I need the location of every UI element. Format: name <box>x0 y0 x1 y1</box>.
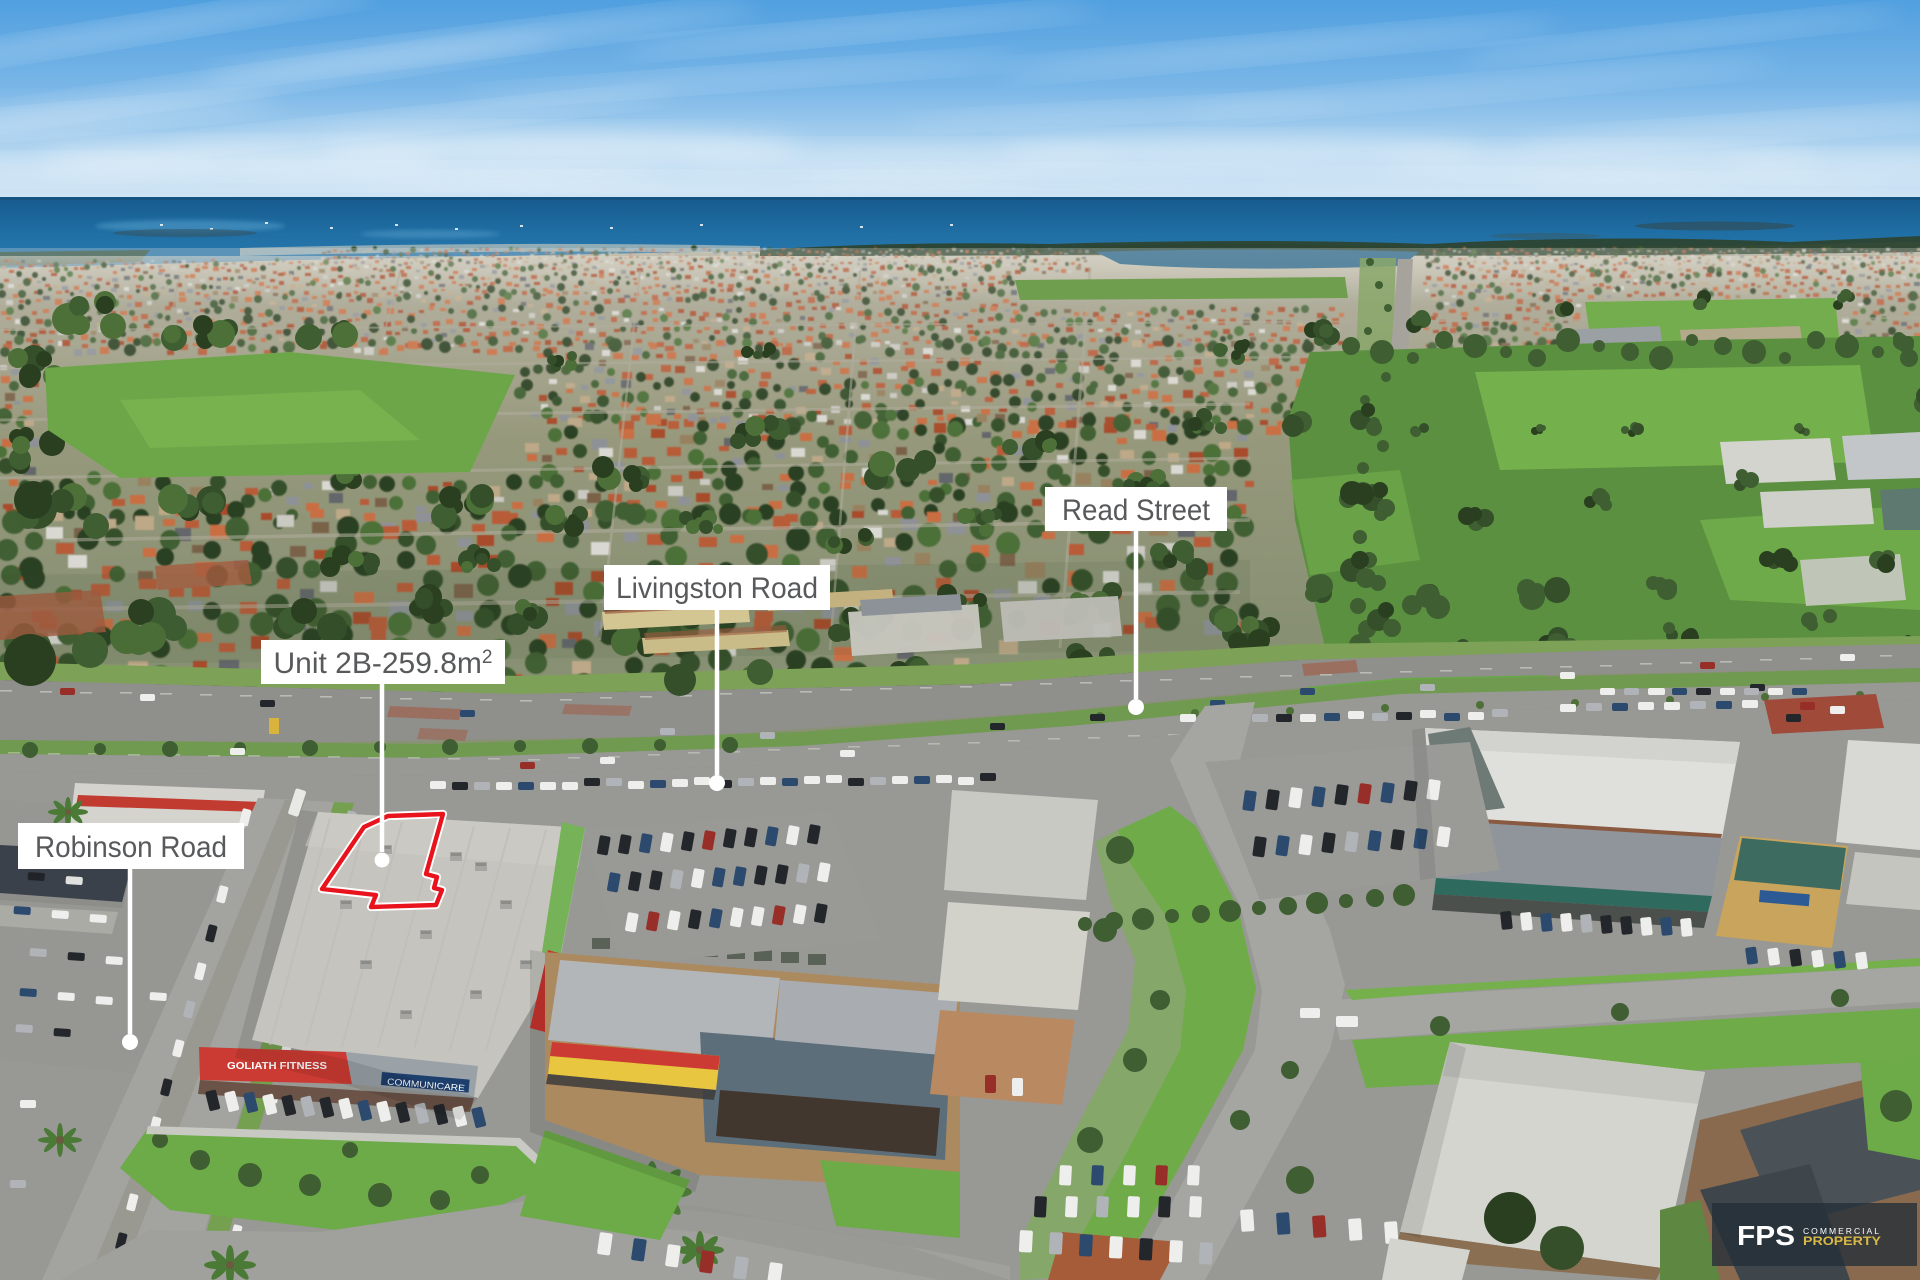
svg-text:FPS: FPS <box>1737 1220 1795 1251</box>
svg-text:Unit 2B-259.8m2: Unit 2B-259.8m2 <box>273 647 492 680</box>
svg-text:Robinson Road: Robinson Road <box>35 831 227 864</box>
svg-text:Read Street: Read Street <box>1062 494 1211 527</box>
svg-text:Livingston Road: Livingston Road <box>616 572 818 605</box>
svg-text:PROPERTY: PROPERTY <box>1803 1234 1881 1248</box>
